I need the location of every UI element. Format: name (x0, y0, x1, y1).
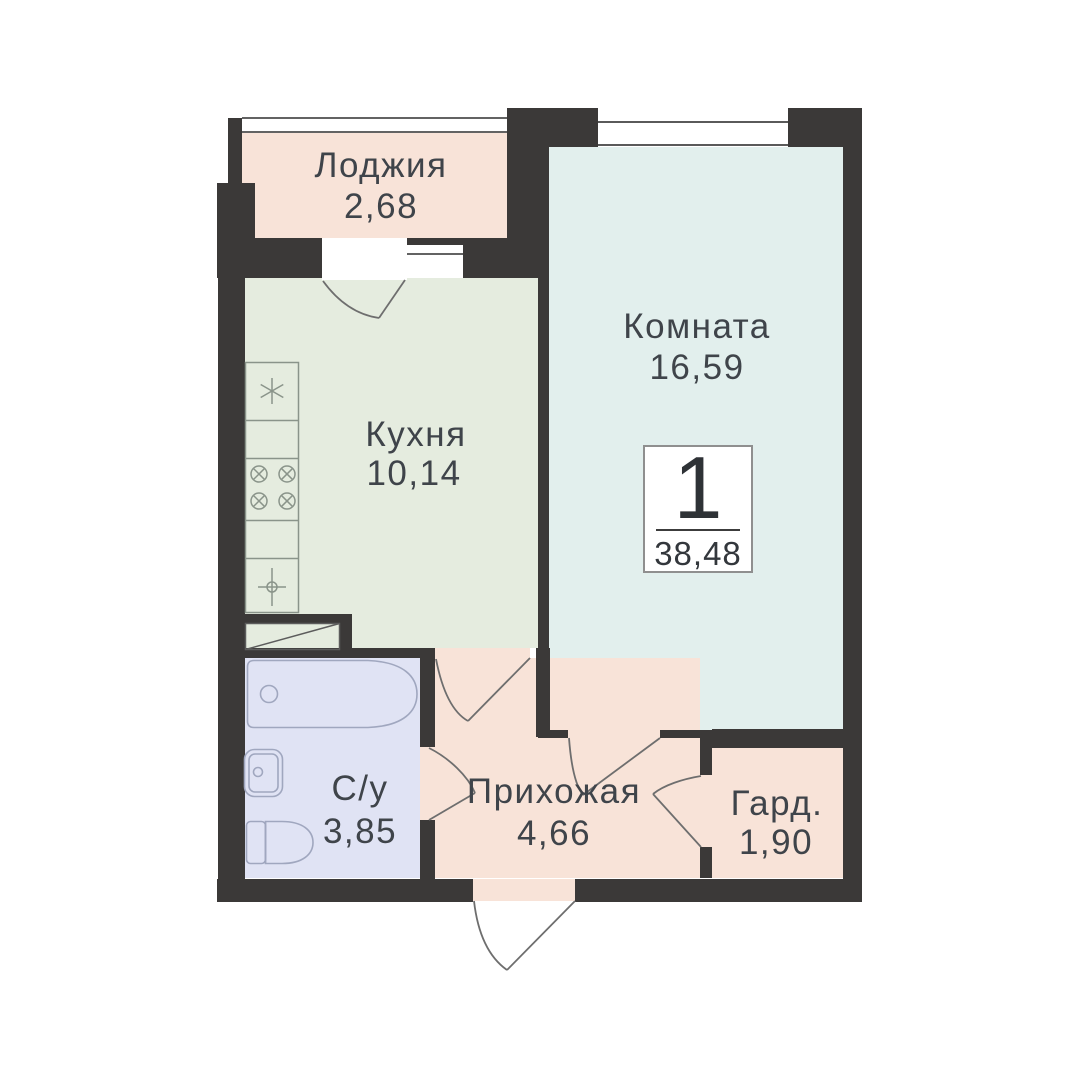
wardrobe-door-arc (653, 776, 701, 794)
toilet-bowl (266, 822, 314, 864)
kitchen-door-leaf (468, 658, 530, 721)
balcony-door-arc (323, 281, 379, 318)
entry-door-arc (474, 901, 507, 970)
doors-and-fixtures-layer (0, 0, 1080, 1080)
toilet-tank (247, 822, 266, 864)
bathroom-area: 3,85 (323, 812, 397, 852)
balcony-door-leaf (379, 280, 405, 318)
room-label: Комната (623, 307, 771, 347)
wardrobe-area: 1,90 (739, 823, 813, 863)
loggia-label: Лоджия (314, 146, 447, 186)
bathtub-drain (261, 686, 278, 703)
kitchen-label: Кухня (365, 415, 466, 455)
room-area: 16,59 (649, 348, 744, 388)
apartment-summary-badge: 1 38,48 (643, 445, 753, 573)
hallway-label: Прихожая (467, 772, 641, 812)
wardrobe-door-leaf (653, 794, 701, 847)
rooms-count: 1 (674, 449, 723, 527)
bathtub (248, 661, 418, 728)
kitchen-sink-icon (258, 568, 286, 606)
badge-divider (656, 529, 740, 531)
floor-plan-canvas: Лоджия 2,68 Комната 16,59 Кухня 10,14 С/… (0, 0, 1080, 1080)
fridge-icon (261, 378, 284, 404)
loggia-area: 2,68 (344, 187, 418, 227)
vent-box-diagonal (246, 624, 340, 650)
bathroom-label: С/у (332, 769, 389, 809)
kitchen-area: 10,14 (366, 454, 461, 494)
stove-burners-icon (251, 466, 295, 509)
bath-sink-drain (254, 768, 263, 777)
kitchen-door-arc (436, 659, 468, 721)
total-area: 38,48 (654, 535, 742, 573)
entry-door-leaf (507, 901, 575, 970)
hallway-area: 4,66 (517, 814, 591, 854)
wardrobe-label: Гард. (731, 784, 824, 824)
